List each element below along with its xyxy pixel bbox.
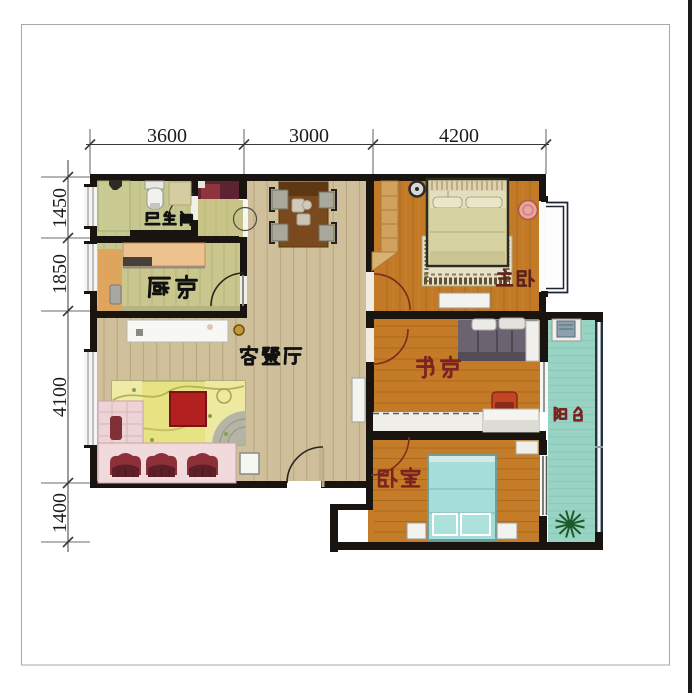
svg-text:3600: 3600 bbox=[147, 125, 187, 147]
svg-text:1400: 1400 bbox=[49, 493, 71, 533]
svg-text:4200: 4200 bbox=[439, 125, 479, 147]
svg-text:3000: 3000 bbox=[289, 125, 329, 147]
svg-text:1850: 1850 bbox=[49, 254, 71, 294]
svg-text:1450: 1450 bbox=[49, 188, 71, 228]
svg-text:4100: 4100 bbox=[49, 377, 71, 417]
